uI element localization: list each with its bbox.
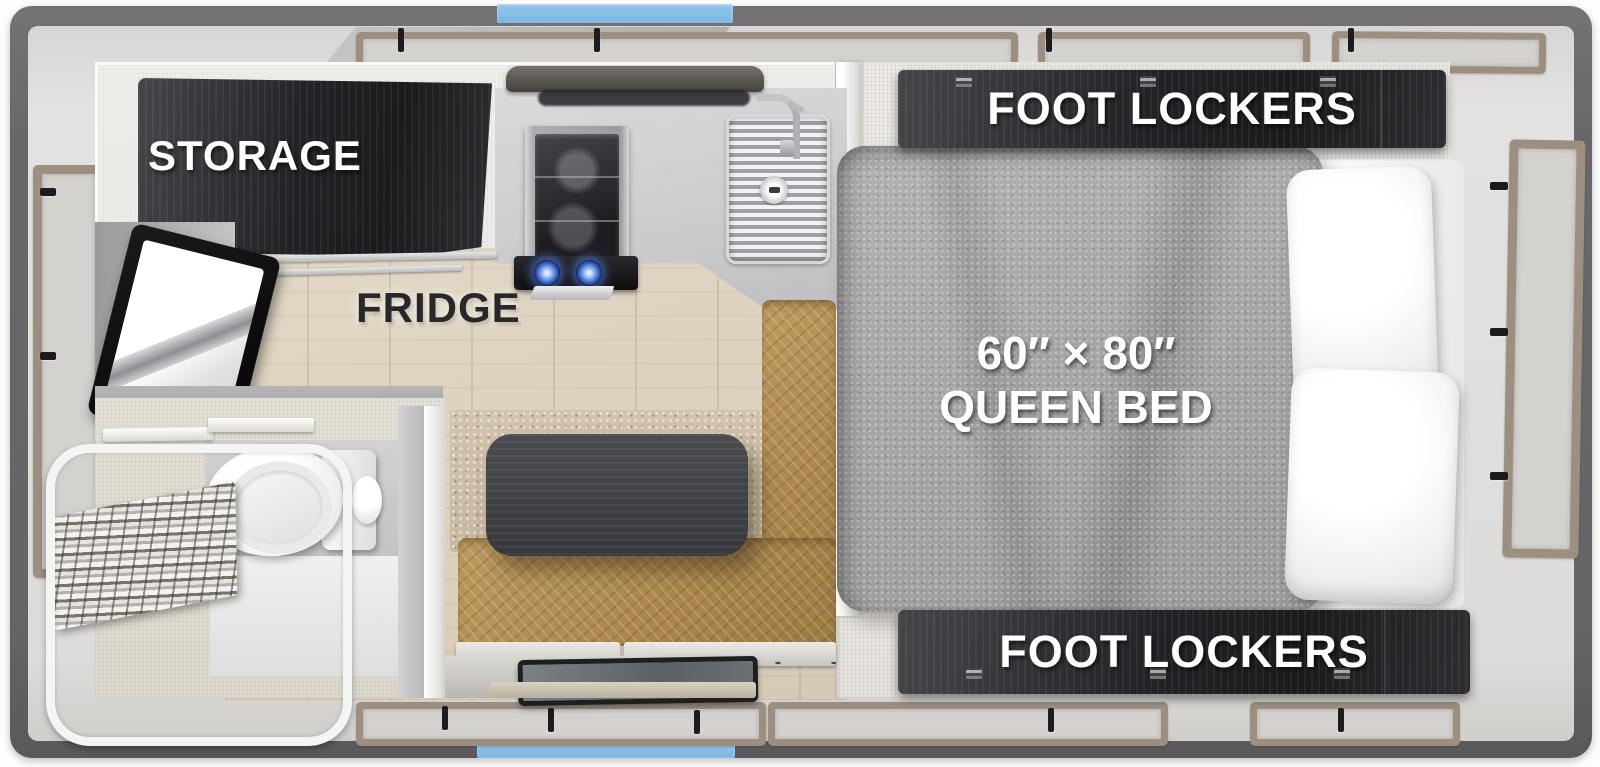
latch-icon — [1150, 668, 1166, 679]
camper-floorplan: STORAGE FRIDGE 60″ × 80″ QUEEN BED FOOT … — [0, 0, 1600, 767]
shower-curtain-track — [46, 444, 352, 746]
canvas-clip — [40, 352, 56, 360]
storage-label: STORAGE — [148, 132, 362, 180]
range-hood-shadow — [538, 90, 750, 106]
canvas-clip — [1048, 708, 1054, 732]
canvas-clip — [1046, 28, 1052, 52]
stove-burner-icon — [534, 260, 560, 286]
canvas-clip — [1490, 182, 1508, 190]
range-hood — [506, 66, 764, 92]
canvas-clip — [1490, 328, 1508, 336]
stove-tray — [529, 286, 614, 300]
cabinet-divider — [1384, 610, 1386, 694]
canvas-clip — [1490, 472, 1508, 480]
bathroom-knob — [352, 476, 382, 524]
canvas-clip — [398, 28, 404, 52]
latch-icon — [966, 668, 982, 679]
canvas-clip — [1348, 28, 1354, 52]
canvas-clip — [1338, 708, 1344, 732]
bed-type-label: QUEEN BED — [880, 380, 1272, 434]
canvas-window-bottom-right — [1250, 702, 1460, 746]
bed-dimensions: 60″ × 80″ QUEEN BED — [880, 326, 1272, 435]
fridge-label: FRIDGE — [356, 284, 521, 332]
accent-bar-top — [497, 4, 733, 23]
bathroom-wall-edge — [424, 406, 442, 698]
stove-burner-icon — [576, 260, 602, 286]
cabinet-divider — [1380, 70, 1382, 148]
canvas-window-bottom-middle — [768, 702, 1168, 746]
latch-icon — [1320, 76, 1336, 87]
faucet-base — [780, 140, 794, 156]
canvas-window-bottom-left — [356, 702, 766, 746]
foot-lockers-bottom-cabinet: FOOT LOCKERS — [898, 610, 1470, 694]
entry-door — [518, 656, 759, 706]
vanity-edge — [208, 418, 314, 432]
latch-icon — [1140, 76, 1156, 87]
latch-icon — [1334, 668, 1350, 679]
tv-reflection — [105, 299, 264, 397]
canvas-window-right — [1502, 139, 1585, 558]
sink-drain-slot — [769, 187, 780, 193]
canvas-clip — [594, 28, 600, 52]
canvas-clip — [40, 188, 56, 196]
latch-icon — [956, 76, 972, 87]
oven-window — [535, 134, 619, 264]
canvas-clip — [442, 706, 448, 730]
foot-lockers-bottom-label: FOOT LOCKERS — [999, 626, 1369, 678]
foot-lockers-top-label: FOOT LOCKERS — [987, 83, 1357, 135]
entry-tread — [490, 682, 756, 698]
canvas-clip — [694, 710, 700, 734]
dinette-table — [486, 434, 748, 556]
canvas-clip — [548, 708, 554, 732]
vanity-edge — [103, 427, 213, 442]
foot-lockers-top-cabinet: FOOT LOCKERS — [898, 70, 1446, 148]
pillow — [1284, 367, 1460, 605]
bed-size-label: 60″ × 80″ — [880, 326, 1272, 380]
